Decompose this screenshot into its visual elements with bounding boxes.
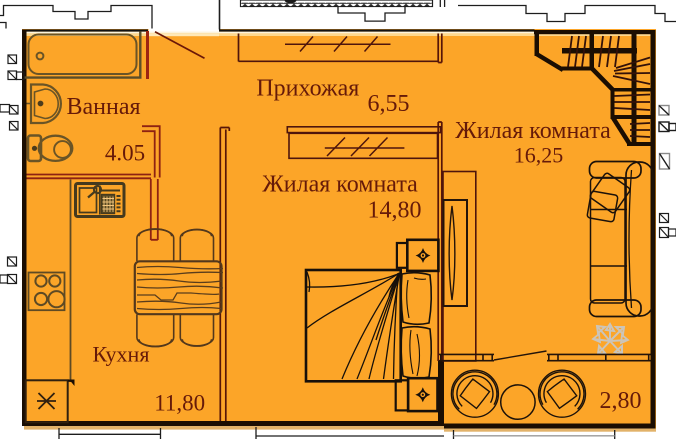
svg-text:Прихожая: Прихожая xyxy=(256,76,359,102)
svg-text:14,80: 14,80 xyxy=(368,197,422,223)
svg-text:16,25: 16,25 xyxy=(514,143,564,168)
svg-text:6,55: 6,55 xyxy=(368,91,410,117)
svg-text:Жилая комната: Жилая комната xyxy=(455,118,611,144)
svg-text:2,80: 2,80 xyxy=(600,388,642,414)
svg-text:4.05: 4.05 xyxy=(105,141,145,166)
svg-text:Кухня: Кухня xyxy=(93,341,150,366)
svg-text:11,80: 11,80 xyxy=(154,390,205,415)
svg-text:Жилая комната: Жилая комната xyxy=(262,172,418,198)
svg-text:Ванная: Ванная xyxy=(66,94,140,120)
